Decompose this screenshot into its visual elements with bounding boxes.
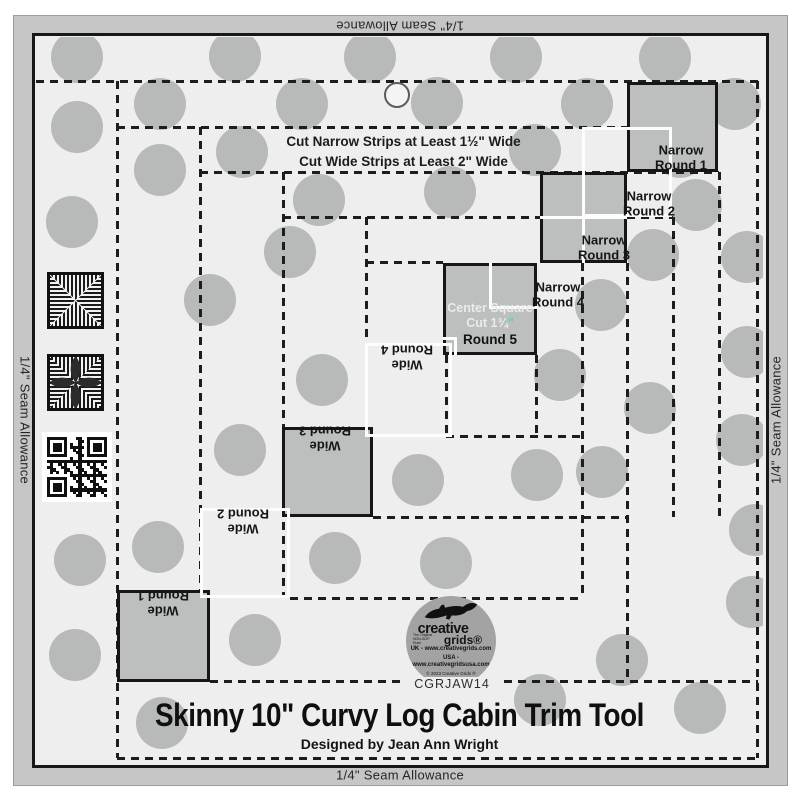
qr-module xyxy=(104,488,107,491)
grip-dot xyxy=(561,78,613,130)
round-label-line: Round 4 xyxy=(532,295,584,310)
instruction-line-wide: Cut Wide Strips at Least 2" Wide xyxy=(44,152,763,172)
qr-module xyxy=(104,460,107,463)
product-title: Skinny 10" Curvy Log Cabin Trim Tool xyxy=(83,697,715,734)
grip-dot xyxy=(296,354,348,406)
seam-allowance-label-right: 1/4" Seam Allowance xyxy=(769,356,784,484)
round-label-wide-1: WideRound 4 xyxy=(381,343,433,372)
round-label-line: Narrow xyxy=(578,234,630,249)
dashed-guide-line xyxy=(672,217,675,517)
grip-dot xyxy=(276,78,328,130)
grip-dot xyxy=(46,196,98,248)
qr-module xyxy=(64,454,67,457)
grip-dot xyxy=(134,78,186,130)
dashed-guide-line xyxy=(718,172,721,517)
dashed-guide-line xyxy=(446,435,582,438)
qr-module xyxy=(81,446,84,449)
qr-module xyxy=(104,454,107,457)
round-label-line: Round 2 xyxy=(217,507,269,522)
dashed-guide-line xyxy=(756,81,759,758)
center-square-line1: Center Square xyxy=(443,301,537,316)
ruler-product-image: 1/4" Seam Allowance 1/4" Seam Allowance … xyxy=(0,0,800,800)
qr-module xyxy=(104,474,107,477)
log-cabin-block-icon-1 xyxy=(47,272,104,329)
instruction-line-narrow: Cut Narrow Strips at Least 1½" Wide xyxy=(44,132,763,152)
qr-module xyxy=(93,494,96,497)
round-label-line: Wide xyxy=(299,438,351,453)
ruler-canvas: NarrowRound 1NarrowRound 2NarrowRound 3N… xyxy=(36,37,763,762)
qr-module xyxy=(104,466,107,469)
grip-dot xyxy=(184,274,236,326)
round-label-wide-4: WideRound 1 xyxy=(137,589,189,618)
grip-dot xyxy=(511,449,563,501)
grip-dot xyxy=(49,629,101,681)
round-label-narrow-3: NarrowRound 3 xyxy=(578,234,630,263)
fox-icon xyxy=(419,601,483,623)
hanging-hole xyxy=(384,82,410,108)
cyan-inch-mark: " xyxy=(508,316,514,330)
grip-dot xyxy=(411,77,463,129)
dashed-guide-line xyxy=(117,757,758,760)
log-cabin-block-icon-2 xyxy=(47,354,104,411)
dashed-guide-line xyxy=(581,263,584,598)
grip-dot xyxy=(209,37,261,82)
round-label-line: Round 3 xyxy=(578,248,630,263)
grip-dot xyxy=(392,454,444,506)
round-label-line: Narrow xyxy=(623,190,675,205)
grip-dot xyxy=(639,37,691,84)
round-label-wide-2: WideRound 3 xyxy=(299,424,351,453)
qr-module xyxy=(81,440,84,443)
qr-module xyxy=(104,480,107,483)
grip-dot xyxy=(229,614,281,666)
dashed-guide-line xyxy=(366,261,443,264)
dashed-guide-line xyxy=(535,355,538,436)
brand-tagline: The Original NON-SLIP Ruler xyxy=(413,633,435,645)
seam-allowance-label-top: 1/4" Seam Allowance xyxy=(336,19,464,34)
grip-dot xyxy=(420,537,472,589)
seam-allowance-label-left: 1/4" Seam Allowance xyxy=(18,356,33,484)
product-designer: Designed by Jean Ann Wright xyxy=(36,736,763,752)
qr-module xyxy=(50,471,53,474)
qr-module xyxy=(58,448,61,451)
round-label-line: Round 3 xyxy=(299,424,351,439)
seam-allowance-label-bottom: 1/4" Seam Allowance xyxy=(336,768,464,783)
center-square-line3: Round 5 xyxy=(443,331,537,348)
qr-module xyxy=(58,488,61,491)
qr-module xyxy=(56,471,59,474)
dashed-guide-line xyxy=(626,263,629,681)
qr-module xyxy=(64,494,67,497)
round-label-wide-3: WideRound 2 xyxy=(217,507,269,536)
qr-module xyxy=(98,448,101,451)
brand-url-usa: USA - www.creativegridsusa.com xyxy=(406,655,496,670)
qr-module xyxy=(104,494,107,497)
round-label-line: Wide xyxy=(381,357,433,372)
brand-logo: creative grids® The Original NON-SLIP Ru… xyxy=(406,596,496,686)
grip-dot xyxy=(596,634,648,686)
brand-url-uk: UK - www.creativegrids.com xyxy=(406,646,496,654)
qr-module xyxy=(81,454,84,457)
qr-code xyxy=(42,432,112,502)
dashed-guide-line xyxy=(283,216,540,219)
grip-dot xyxy=(132,521,184,573)
grip-dot xyxy=(264,226,316,278)
grip-dot xyxy=(534,349,586,401)
grip-dot xyxy=(51,37,103,83)
grip-dot xyxy=(309,532,361,584)
grip-dot xyxy=(670,179,722,231)
round-label-narrow-2: NarrowRound 2 xyxy=(623,190,675,219)
product-sku: CGRJAW14 xyxy=(405,677,499,691)
grip-dot xyxy=(624,382,676,434)
center-square-line2: Cut 1¾" xyxy=(443,316,537,331)
strip-cutting-instructions: Cut Narrow Strips at Least 1½" Wide Cut … xyxy=(44,132,763,172)
round-label-line: Round 2 xyxy=(623,204,675,219)
center-square-label: Center Square Cut 1¾" Round 5 xyxy=(443,301,537,348)
round-label-line: Round 4 xyxy=(381,343,433,358)
qr-module xyxy=(64,471,67,474)
round-label-line: Narrow xyxy=(532,281,584,296)
round-label-narrow-4: NarrowRound 4 xyxy=(532,281,584,310)
dashed-guide-line xyxy=(373,516,627,519)
round-label-line: Round 1 xyxy=(137,589,189,604)
round-label-line: Wide xyxy=(137,603,189,618)
qr-module xyxy=(78,494,81,497)
round-label-line: Wide xyxy=(217,521,269,536)
grip-dot xyxy=(490,37,542,83)
grip-dot xyxy=(214,424,266,476)
grip-dot xyxy=(344,37,396,83)
grip-dot xyxy=(54,534,106,586)
